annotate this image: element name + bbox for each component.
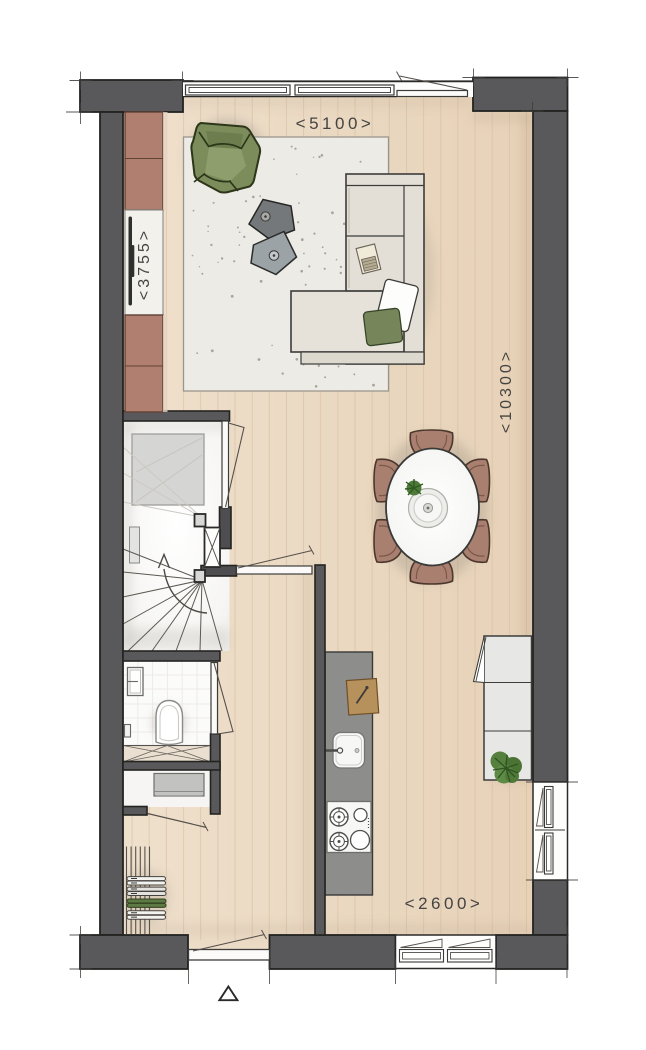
svg-text:<2600>: <2600> bbox=[405, 894, 484, 913]
svg-text:<5100>: <5100> bbox=[296, 114, 375, 133]
svg-text:<3755>: <3755> bbox=[136, 228, 153, 300]
svg-text:<10300>: <10300> bbox=[498, 349, 515, 433]
